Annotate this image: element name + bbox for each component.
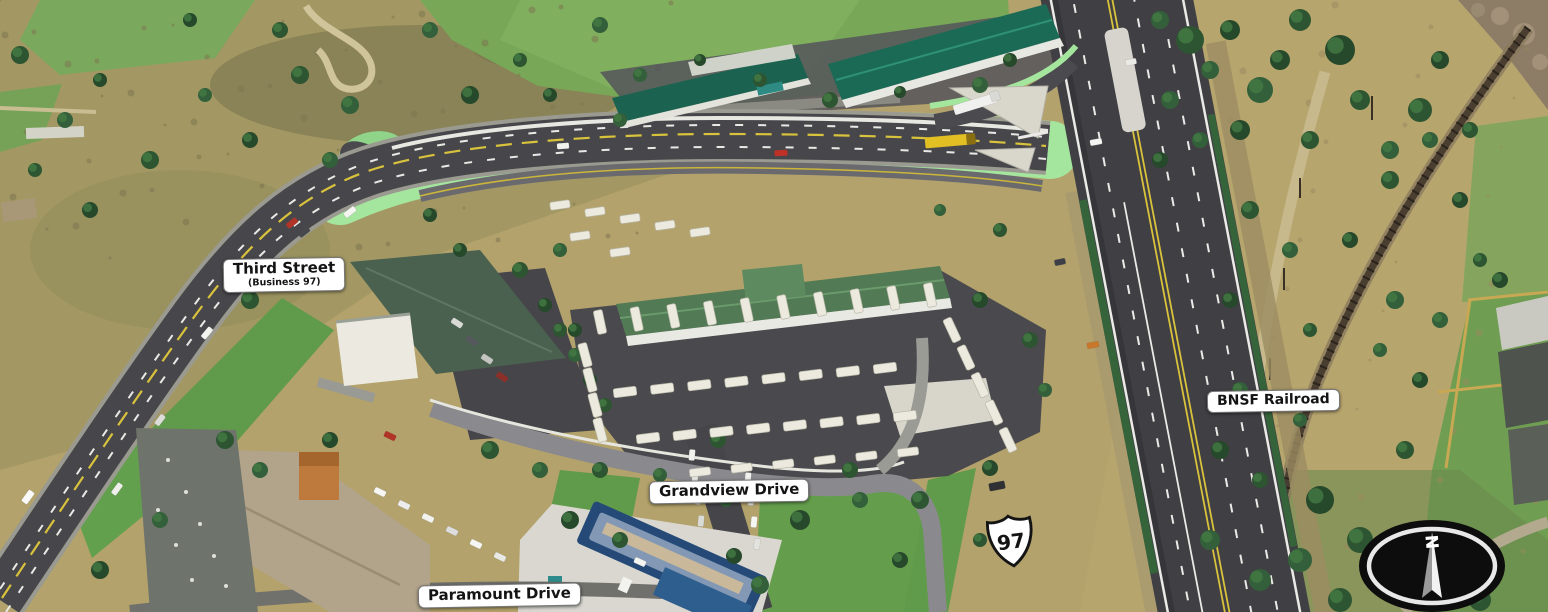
label-third-street-title: Third Street <box>233 258 336 278</box>
us97-route-shield: 97 <box>983 509 1040 573</box>
compass-rose: N <box>1356 518 1508 612</box>
aerial-photo <box>0 0 1548 612</box>
compass-north-letter: N <box>1420 534 1441 550</box>
label-third-street-subtitle: (Business 97) <box>233 277 335 289</box>
label-paramount-drive: Paramount Drive <box>418 583 581 609</box>
shield-route-number: 97 <box>996 528 1027 555</box>
label-bnsf-railroad: BNSF Railroad <box>1207 389 1340 413</box>
label-third-street: Third Street (Business 97) <box>223 257 346 293</box>
label-grandview-drive: Grandview Drive <box>649 479 810 505</box>
aerial-map: Third Street (Business 97) Grandview Dri… <box>0 0 1548 612</box>
